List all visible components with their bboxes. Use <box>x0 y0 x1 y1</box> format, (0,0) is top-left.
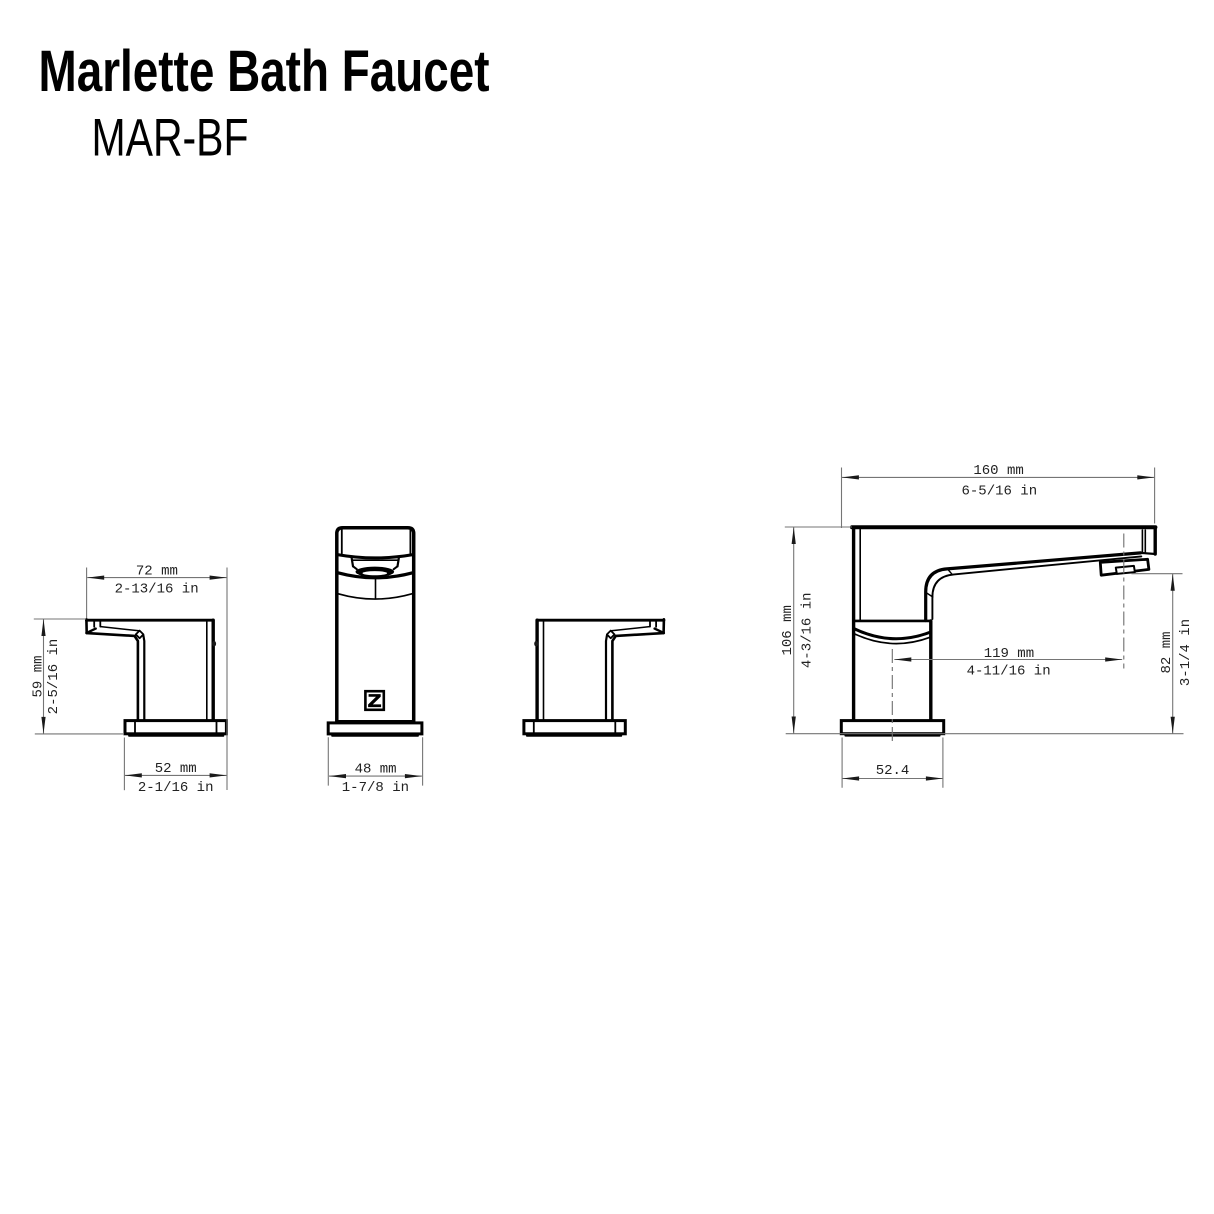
svg-text:2-5/16 in: 2-5/16 in <box>46 639 62 715</box>
svg-text:2-1/16 in: 2-1/16 in <box>138 780 214 796</box>
svg-text:Marlette Bath Faucet: Marlette Bath Faucet <box>39 39 490 104</box>
svg-text:MAR-BF: MAR-BF <box>92 109 249 168</box>
svg-text:72 mm: 72 mm <box>136 563 178 579</box>
svg-text:106 mm: 106 mm <box>780 605 796 655</box>
svg-text:1-7/8 in: 1-7/8 in <box>342 780 409 796</box>
svg-text:4-11/16 in: 4-11/16 in <box>967 663 1051 679</box>
svg-text:4-3/16 in: 4-3/16 in <box>799 592 815 668</box>
svg-text:2-13/16 in: 2-13/16 in <box>115 582 199 598</box>
svg-text:82 mm: 82 mm <box>1159 631 1175 673</box>
svg-text:3-1/4 in: 3-1/4 in <box>1178 619 1194 686</box>
svg-text:6-5/16 in: 6-5/16 in <box>961 483 1037 499</box>
svg-text:52 mm: 52 mm <box>155 761 197 777</box>
svg-text:119 mm: 119 mm <box>984 646 1034 662</box>
svg-text:59 mm: 59 mm <box>31 655 47 697</box>
svg-text:52.4: 52.4 <box>876 763 910 779</box>
svg-text:160 mm: 160 mm <box>973 463 1023 479</box>
svg-text:48 mm: 48 mm <box>355 762 397 778</box>
